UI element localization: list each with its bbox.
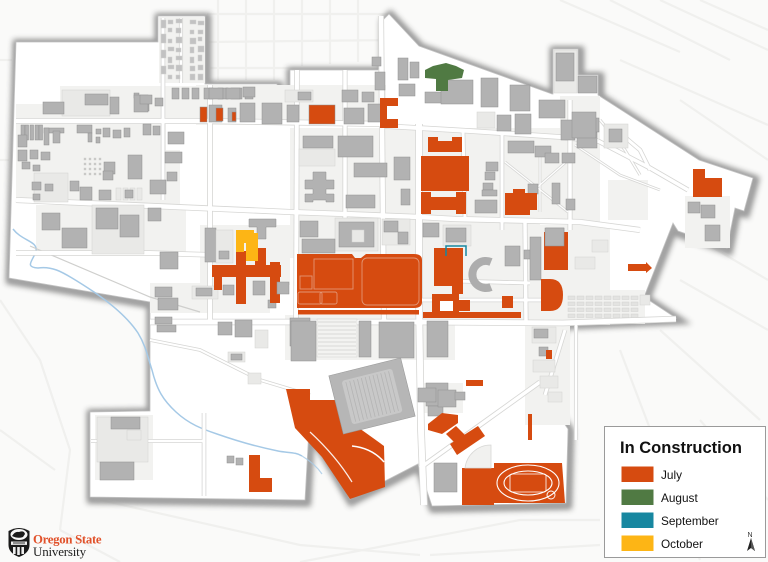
- svg-text:University: University: [33, 544, 87, 559]
- svg-text:August: August: [661, 491, 698, 505]
- svg-text:In Construction: In Construction: [620, 439, 742, 457]
- svg-text:July: July: [661, 468, 682, 482]
- svg-text:October: October: [661, 537, 703, 551]
- svg-text:N: N: [748, 532, 753, 539]
- svg-text:September: September: [661, 514, 719, 528]
